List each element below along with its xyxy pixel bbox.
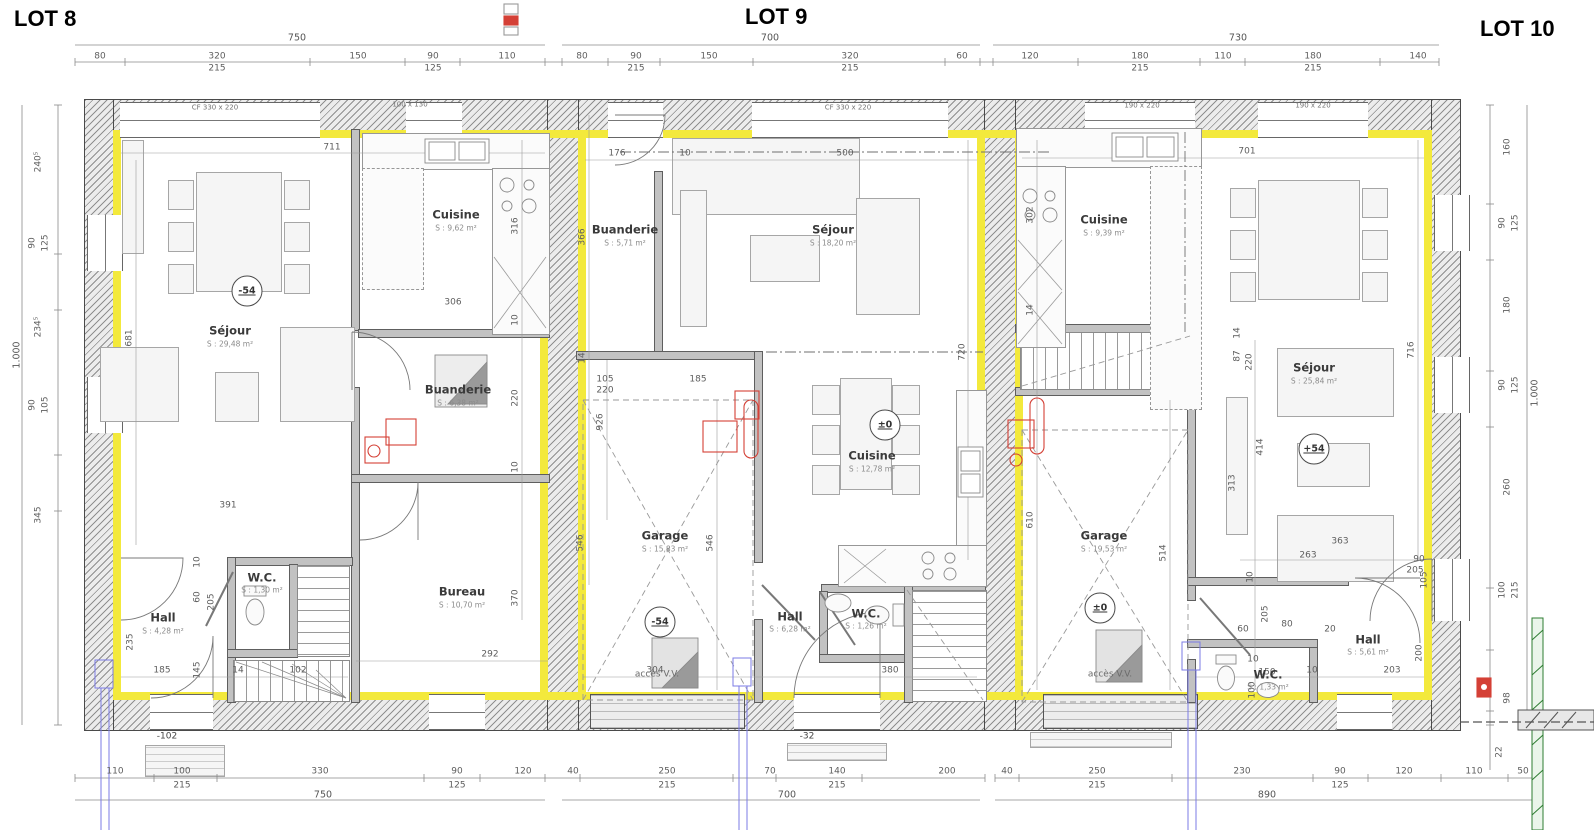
- room-area-lot8-wc: S : 1,30 m²: [241, 586, 282, 594]
- chair: [284, 180, 310, 210]
- room-name-lot8-buanderie: Buanderie: [425, 384, 491, 396]
- dim-label: 263: [1299, 552, 1316, 561]
- dim-label: 235: [127, 633, 136, 650]
- dim-label: 215: [627, 65, 644, 74]
- room-area-lot8-buanderie: S : 6,38 m²: [437, 399, 478, 407]
- kitchen-counter-lot10-side: [1016, 166, 1066, 348]
- lot10-title: LOT 10: [1480, 18, 1555, 40]
- dim-label: 140: [828, 768, 845, 777]
- cabinet-lot8: [122, 140, 144, 254]
- dim-label: 100: [1499, 581, 1508, 598]
- room-area-lot8-cuisine: S : 9,62 m²: [435, 224, 476, 232]
- dim-label: 391: [219, 502, 236, 511]
- level-marker-lot10-garage: ±0: [1085, 593, 1116, 624]
- dim-label: 150: [700, 53, 717, 62]
- room-name-lot10-garage: Garage: [1081, 530, 1128, 542]
- dim-label: 220: [1246, 353, 1255, 370]
- stairs-lot9: [912, 590, 987, 702]
- dim-label: 546: [577, 534, 586, 551]
- room-area-lot10-cuisine: S : 9,39 m²: [1083, 229, 1124, 237]
- sofa-lot8: [280, 327, 355, 422]
- chair: [168, 264, 194, 294]
- window-lot8-bureau: [429, 694, 485, 730]
- coffee-table-lot8: [215, 372, 259, 422]
- dim-label: 320: [841, 53, 858, 62]
- dim-label: 14: [1234, 327, 1243, 338]
- partition: [820, 655, 910, 662]
- level-marker-lot9-cuisine: ±0: [870, 410, 901, 441]
- dim-label: 711: [323, 144, 340, 153]
- room-name-lot10-cuisine: Cuisine: [1080, 214, 1127, 226]
- dim-label: 330: [311, 768, 328, 777]
- dim-label: 730: [1229, 33, 1247, 43]
- level-value: -54: [238, 286, 255, 296]
- chair: [1230, 272, 1256, 302]
- dim-label: 313: [1229, 474, 1238, 491]
- lot8-title: LOT 8: [14, 8, 76, 30]
- room-name-lot8-sejour: Séjour: [209, 325, 251, 337]
- chair: [812, 385, 840, 415]
- dining-table-lot8: [196, 172, 282, 292]
- dim-label: 125: [1331, 782, 1348, 791]
- chair: [1362, 188, 1388, 218]
- partition: [820, 592, 827, 662]
- dim-label: 90: [427, 53, 438, 62]
- dim-label: 716: [1408, 341, 1417, 358]
- partition: [655, 172, 662, 355]
- dim-label: 200: [1416, 644, 1425, 661]
- dim-label: 125: [1512, 376, 1521, 393]
- partition: [755, 352, 762, 562]
- dim-label: 750: [288, 33, 306, 43]
- level-marker-lot10-sejour: +54: [1299, 434, 1330, 465]
- chair: [892, 465, 920, 495]
- level-value: ±0: [1093, 603, 1108, 613]
- level-marker-lot8-sejour: -54: [232, 276, 263, 307]
- room-name-lot9-hall: Hall: [777, 611, 802, 623]
- dim-label: 80: [1281, 621, 1292, 630]
- dim-label: 220: [596, 387, 613, 396]
- chair: [168, 222, 194, 252]
- sofa-lot10-bottom: [1277, 515, 1394, 582]
- kitchen-counter-lot9-bottom: [838, 545, 987, 587]
- kitchen-counter-lot8-side: [492, 168, 550, 335]
- dim-label: 10: [512, 461, 521, 472]
- level-threshold-lot9: -32: [800, 733, 815, 742]
- dim-label: 215: [1088, 782, 1105, 791]
- dim-label: 125: [448, 782, 465, 791]
- level-marker-lot9-garage: -54: [645, 607, 676, 638]
- cabinet-lot10: [1226, 397, 1248, 535]
- dim-label: 60: [194, 591, 203, 602]
- room-name-lot9-buanderie: Buanderie: [592, 224, 658, 236]
- dim-label: 363: [1331, 538, 1348, 547]
- dim-label: 185: [689, 376, 706, 385]
- dim-label: 215: [841, 65, 858, 74]
- dim-label: 105: [1421, 571, 1430, 588]
- room-name-lot10-hall: Hall: [1355, 634, 1380, 646]
- room-area-lot10-hall: S : 5,61 m²: [1347, 648, 1388, 656]
- dim-label: 176: [608, 150, 625, 159]
- dim-label: 700: [761, 33, 779, 43]
- dim-label: 10: [1247, 656, 1258, 665]
- dim-label: 500: [836, 150, 853, 159]
- dim-label: 105: [42, 396, 51, 413]
- porch-lot9: [787, 743, 887, 761]
- dim-label: 366: [579, 228, 588, 245]
- dim-label: 316: [512, 217, 521, 234]
- dim-label: 87: [1234, 350, 1243, 361]
- dim-label: 90: [451, 768, 462, 777]
- dim-label: 60: [1237, 626, 1248, 635]
- room-name-lot8-hall: Hall: [150, 612, 175, 624]
- dim-label: 180: [1131, 53, 1148, 62]
- dim-label: 215: [1131, 65, 1148, 74]
- window-size-label: 190 x 220: [1124, 103, 1159, 110]
- kitchen-counter-lot10-top: [1016, 128, 1202, 168]
- chair: [284, 222, 310, 252]
- partition: [228, 650, 297, 657]
- room-name-lot9-garage: Garage: [642, 530, 689, 542]
- access-label-lot9: accès V.V.: [635, 671, 679, 680]
- door-lot10-entry: [1434, 559, 1470, 621]
- dim-label: 10: [1306, 667, 1317, 676]
- dim-label: 140: [1409, 53, 1426, 62]
- dim-label: 10: [679, 150, 690, 159]
- dim-label: 701: [1238, 148, 1255, 157]
- window-size-label: 100 x 130: [392, 102, 427, 109]
- room-area-lot9-sejour: S : 18,20 m²: [810, 239, 856, 247]
- door-lot8-entry: [150, 694, 213, 730]
- dim-label: 110: [1465, 768, 1482, 777]
- chair: [1362, 230, 1388, 260]
- dim-label: 215: [1304, 65, 1321, 74]
- dim-label: 1.000: [12, 341, 22, 368]
- window-lot8-west-1: [87, 215, 123, 271]
- dim-label: 681: [126, 329, 135, 346]
- armchair-lot8: [100, 347, 179, 422]
- lot9-title: LOT 9: [745, 6, 807, 28]
- room-area-lot8-sejour: S : 29,48 m²: [207, 340, 253, 348]
- chair: [892, 385, 920, 415]
- dim-label: 125: [424, 65, 441, 74]
- window-lot9-buanderie: [608, 102, 663, 138]
- dim-label: 750: [314, 790, 332, 800]
- room-name-lot9-wc: W.C.: [852, 608, 881, 620]
- room-area-lot9-cuisine: S : 12,78 m²: [849, 465, 895, 473]
- dim-label: 14: [579, 352, 588, 363]
- dim-label: 40: [567, 768, 578, 777]
- dim-label: 10: [1247, 571, 1256, 582]
- dim-label: 22: [1496, 746, 1505, 757]
- dim-label: 890: [1258, 790, 1276, 800]
- dim-label: 90: [1413, 556, 1424, 565]
- wall-bottom: [85, 700, 1460, 730]
- dim-label: 80: [576, 53, 587, 62]
- dim-label: 14: [1027, 304, 1036, 315]
- dim-label: 102: [289, 667, 306, 676]
- level-value: +54: [1303, 444, 1324, 454]
- dim-label: 90: [1499, 217, 1508, 228]
- dim-label: 160: [1504, 138, 1513, 155]
- dim-label: 205: [1262, 605, 1271, 622]
- dim-label: 234⁵: [35, 317, 44, 338]
- tv-cabinet-lot9: [680, 190, 707, 327]
- dim-label: 514: [1160, 544, 1169, 561]
- party-wall-lot8-lot9: [548, 100, 578, 730]
- partition: [352, 130, 359, 330]
- partition: [905, 585, 912, 702]
- dining-table-lot10: [1258, 180, 1360, 300]
- dim-label: 40: [1001, 768, 1012, 777]
- dim-label: 302: [1027, 206, 1036, 223]
- dim-label: 105: [596, 376, 613, 385]
- window-lot10-east-2: [1434, 357, 1470, 413]
- dim-label: 215: [828, 782, 845, 791]
- dim-label: 345: [35, 506, 44, 523]
- room-area-lot10-garage: S : 19,53 m²: [1081, 545, 1127, 553]
- window-lot10-east-1: [1434, 195, 1470, 251]
- stairs-lot8: [297, 565, 350, 657]
- dim-label: 90: [630, 53, 641, 62]
- room-area-lot8-hall: S : 4,28 m²: [142, 627, 183, 635]
- dim-label: 926: [597, 413, 606, 430]
- level-threshold-lot8: -102: [157, 733, 177, 742]
- dim-label: 200: [938, 768, 955, 777]
- room-area-lot9-hall: S : 6,28 m²: [769, 625, 810, 633]
- window-lot10-wc: [1337, 694, 1392, 730]
- dim-label: 180: [1504, 296, 1513, 313]
- dim-label: 90: [29, 237, 38, 248]
- dim-label: 1.000: [1530, 379, 1540, 406]
- chair: [284, 264, 310, 294]
- dim-label: 215: [208, 65, 225, 74]
- dim-label: 10: [194, 556, 203, 567]
- dim-label: 20: [1324, 626, 1335, 635]
- dim-label: 380: [881, 667, 898, 676]
- dim-label: 180: [1304, 53, 1321, 62]
- window-size-label: CF 330 x 220: [825, 105, 871, 112]
- dim-label: 110: [1214, 53, 1231, 62]
- dim-label: 145: [194, 661, 203, 678]
- room-area-lot10-sejour: S : 25,84 m²: [1291, 377, 1337, 385]
- chair: [1230, 230, 1256, 260]
- dim-label: 70: [764, 768, 775, 777]
- dim-label: 370: [512, 589, 521, 606]
- dim-label: 120: [1021, 53, 1038, 62]
- dim-label: 240⁵: [35, 152, 44, 173]
- insulation-party1-east: [578, 138, 586, 692]
- dim-label: 90: [1499, 379, 1508, 390]
- partition: [577, 352, 762, 359]
- garage-door-lot10: [1043, 694, 1198, 729]
- room-name-lot10-wc: W.C.: [1254, 669, 1283, 681]
- dim-label: 90: [29, 399, 38, 410]
- dim-label: 110: [106, 768, 123, 777]
- dim-label: 215: [658, 782, 675, 791]
- partition: [352, 388, 359, 702]
- garage-door-lot9: [590, 694, 745, 729]
- dim-label: 185: [153, 667, 170, 676]
- dim-label: 250: [658, 768, 675, 777]
- dim-label: 215: [1512, 581, 1521, 598]
- chair: [1230, 188, 1256, 218]
- dim-label: 250: [1088, 768, 1105, 777]
- dim-label: 292: [481, 651, 498, 660]
- partition: [755, 620, 762, 702]
- chair: [1362, 272, 1388, 302]
- room-name-lot8-bureau: Bureau: [439, 586, 485, 598]
- room-area-lot9-garage: S : 15,83 m²: [642, 545, 688, 553]
- dim-label: 260: [1504, 478, 1513, 495]
- insulation-right: [1424, 130, 1432, 700]
- dim-label: 110: [498, 53, 515, 62]
- dim-label: 320: [208, 53, 225, 62]
- dim-label: 230: [1233, 768, 1250, 777]
- dim-label: 215: [173, 782, 190, 791]
- dim-label: 700: [778, 790, 796, 800]
- floor-plan: LOT 8 LOT 9 LOT 10 750 80 320 215 150 90…: [0, 0, 1594, 830]
- dim-label: 125: [1512, 214, 1521, 231]
- kitchen-peninsula-lot10: [1150, 166, 1202, 410]
- room-area-lot8-bureau: S : 10,70 m²: [439, 601, 485, 609]
- room-name-lot9-cuisine: Cuisine: [848, 450, 895, 462]
- room-area-lot10-wc: S : 1,33 m²: [1247, 683, 1288, 691]
- dim-label: 10: [512, 314, 521, 325]
- dim-label: 610: [1027, 511, 1036, 528]
- dim-label: 50: [1517, 768, 1528, 777]
- chair: [812, 425, 840, 455]
- partition: [228, 558, 352, 565]
- dim-label: 125: [42, 234, 51, 251]
- dim-label: 150: [349, 53, 366, 62]
- party-wall-lot9-lot10: [985, 100, 1015, 730]
- room-area-lot9-buanderie: S : 5,71 m²: [604, 239, 645, 247]
- apron-lot10: [1030, 732, 1172, 748]
- dim-label: 120: [514, 768, 531, 777]
- kitchen-counter-lot8: [362, 133, 550, 170]
- chair: [168, 180, 194, 210]
- partition: [352, 475, 549, 482]
- kitchen-counter-lot8-dashed: [362, 168, 424, 290]
- dim-label: 14: [232, 667, 243, 676]
- partition: [1188, 660, 1195, 702]
- chair: [812, 465, 840, 495]
- level-value: ±0: [878, 420, 893, 430]
- room-name-lot10-sejour: Séjour: [1293, 362, 1335, 374]
- dim-label: 120: [1395, 768, 1412, 777]
- room-name-lot8-wc: W.C.: [248, 572, 277, 584]
- room-name-lot9-sejour: Séjour: [812, 224, 854, 236]
- dim-label: 414: [1257, 438, 1266, 455]
- door-lot9-entry: [794, 694, 880, 730]
- partition: [1188, 640, 1317, 647]
- dim-label: 80: [94, 53, 105, 62]
- window-size-label: CF 330 x 220: [192, 105, 238, 112]
- dim-label: 203: [1383, 667, 1400, 676]
- room-name-lot8-cuisine: Cuisine: [432, 209, 479, 221]
- partition: [290, 565, 297, 652]
- access-label-lot10: accès V.V.: [1088, 671, 1132, 680]
- dim-label: 90: [1334, 768, 1345, 777]
- dim-label: 546: [707, 534, 716, 551]
- dim-label: 100: [173, 768, 190, 777]
- dim-label: 205: [208, 593, 217, 610]
- dim-label: 306: [444, 299, 461, 308]
- window-size-label: 190 x 220: [1295, 103, 1330, 110]
- dim-label: 720: [959, 343, 968, 360]
- dim-label: 60: [956, 53, 967, 62]
- dim-label: 220: [512, 389, 521, 406]
- room-area-lot9-wc: S : 1,26 m²: [845, 622, 886, 630]
- level-value: -54: [651, 617, 668, 627]
- armchair-lot9: [856, 198, 920, 315]
- dim-label: 98: [1504, 692, 1513, 703]
